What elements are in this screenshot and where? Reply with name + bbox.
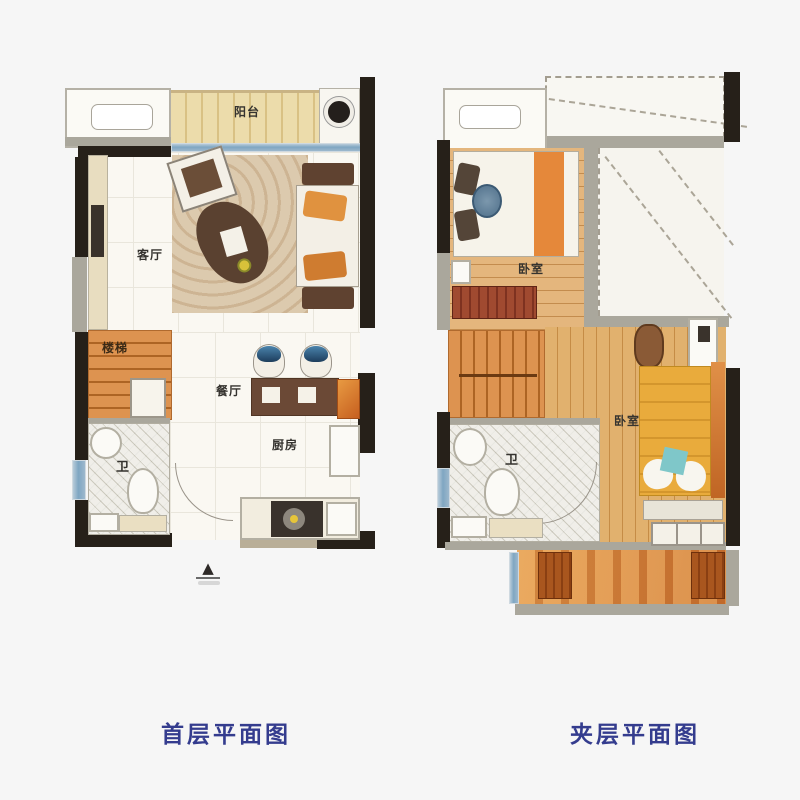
- first-floor-caption: 首层平面图: [126, 715, 326, 749]
- terrace-window: [509, 552, 519, 604]
- bathroom2-window: [437, 468, 450, 508]
- mezzanine-caption: 夹层平面图: [535, 715, 735, 749]
- wall-right-mid: [358, 373, 375, 453]
- toilet-2-icon: [484, 468, 520, 516]
- toilet-icon: [127, 468, 159, 514]
- void-dash-line-2: [604, 156, 732, 319]
- bathroom2-cabinet-1: [451, 516, 487, 538]
- dining-chair-1-back: [257, 346, 281, 362]
- wall-left-2: [72, 257, 87, 332]
- dining-chair-1: [253, 344, 285, 378]
- desk-chair: [634, 324, 664, 368]
- bed-2-teal-cushion: [660, 447, 688, 475]
- dining-chair-2-back: [304, 346, 328, 362]
- bed-1-round-cushion: [472, 184, 502, 218]
- armchair-seat: [181, 159, 223, 198]
- bedroom1-label: 卧室: [507, 262, 555, 276]
- placemat-2: [298, 387, 316, 403]
- wall-bedroom1-divider: [584, 145, 598, 331]
- balcony-window: [171, 143, 361, 152]
- bed-1: [453, 151, 579, 257]
- sink-icon: [90, 427, 122, 459]
- dining-room-label: 餐厅: [207, 384, 251, 398]
- stove-burner-center: [290, 515, 298, 523]
- entrance-arrow-icon: ▲: [194, 559, 222, 577]
- bed-1-blanket: [534, 152, 564, 256]
- magazine: [220, 226, 248, 257]
- terrace-wall-bottom: [515, 604, 729, 615]
- refrigerator: [329, 425, 360, 477]
- wall-left-top: [437, 140, 450, 253]
- bathroom-cabinet-1: [89, 513, 119, 532]
- side-shelf: [711, 362, 725, 498]
- bathroom-window: [72, 460, 86, 500]
- stairs-2: [448, 330, 545, 418]
- wall-right-top: [360, 77, 375, 328]
- wall-left-bath-1: [437, 412, 450, 468]
- entrance-text-smudge: [198, 581, 220, 585]
- sofa-armrest-bottom: [302, 287, 354, 309]
- bed-2-bench: [643, 500, 723, 520]
- wall-under-void: [547, 136, 724, 148]
- bed-2: [639, 366, 711, 496]
- wall-left-mid: [437, 253, 450, 330]
- dining-chair-2: [300, 344, 332, 378]
- stairs-2-divider: [459, 374, 537, 377]
- tv-icon: [91, 205, 104, 257]
- wardrobe-divider-1: [676, 524, 678, 544]
- dresser: [452, 286, 537, 319]
- sink-2-icon: [453, 428, 487, 466]
- terrace-cabinet-right: [691, 552, 725, 599]
- sideboard-cabinet: [337, 379, 360, 419]
- washing-machine-icon: [324, 97, 354, 127]
- bedroom2-label: 卧室: [603, 414, 651, 428]
- stairs-label: 楼梯: [91, 341, 139, 355]
- bathroom-cabinet-2: [119, 515, 167, 532]
- stair-landing: [130, 378, 166, 418]
- desk-lamp-icon: [698, 326, 710, 342]
- wall-under-ac: [65, 137, 171, 146]
- stove-icon: [271, 501, 323, 537]
- wardrobe: [651, 522, 725, 546]
- ac-unit-2: [459, 105, 521, 129]
- void-dash-line-3: [658, 150, 733, 246]
- sofa-cushion-2: [303, 251, 347, 281]
- terrace-wall-right: [726, 550, 739, 606]
- nightstand-1: [451, 260, 471, 284]
- first-floor-plan: 阳台 客厅: [65, 85, 375, 645]
- kitchen-label: 厨房: [261, 438, 309, 452]
- void-right-dashed: [598, 148, 724, 316]
- terrace-cabinet-left: [538, 552, 572, 599]
- wall-bottom-left: [79, 533, 172, 547]
- balcony-label: 阳台: [215, 105, 279, 119]
- kitchen-sink-icon: [326, 502, 357, 536]
- placemat-1: [262, 387, 280, 403]
- wall-top-right: [724, 72, 740, 142]
- wall-left-3: [75, 332, 88, 460]
- bathroom2-label: 卫: [499, 453, 525, 469]
- flower-vase-icon: [235, 256, 254, 275]
- entrance-arrow-base: [196, 577, 220, 579]
- dining-table: [251, 378, 339, 416]
- void-dash-line-1: [549, 98, 747, 128]
- floorplan-image: 阳台 客厅: [0, 0, 800, 800]
- mezzanine-plan: 卧室 卫: [437, 72, 740, 620]
- sofa-armrest-top: [302, 163, 354, 185]
- bathroom2-cabinet-2: [489, 518, 543, 538]
- sofa: [296, 161, 359, 311]
- void-top-dashed: [545, 76, 725, 138]
- wall-left-1: [75, 157, 88, 257]
- wardrobe-divider-2: [700, 524, 702, 544]
- ac-unit: [91, 104, 153, 130]
- living-room-label: 客厅: [120, 248, 180, 262]
- wall-right-bedroom2: [726, 368, 740, 546]
